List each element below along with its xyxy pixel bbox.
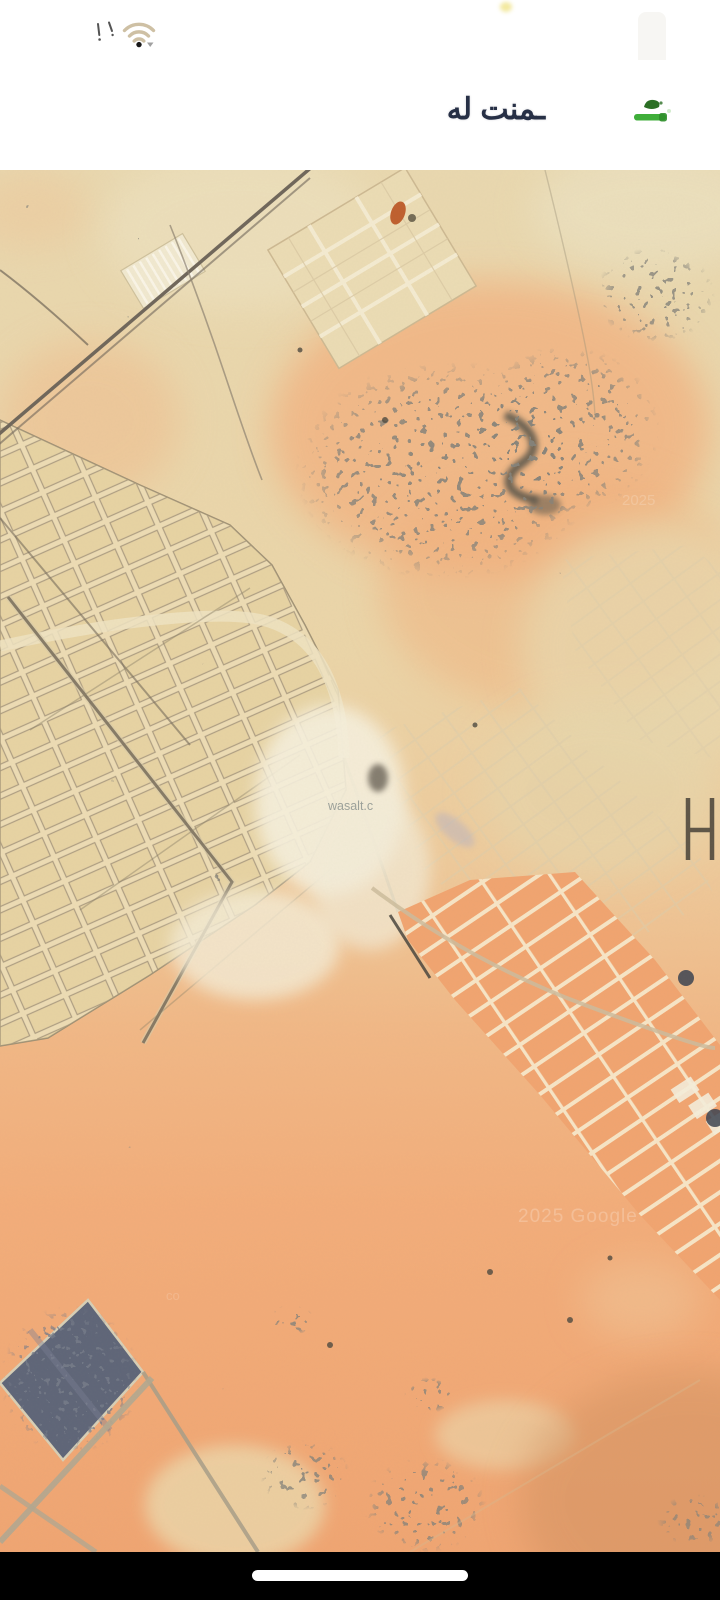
home-indicator[interactable]	[252, 1570, 468, 1581]
watermark-copyright-faint: 2025	[622, 492, 655, 509]
page-title: ـمنت له	[447, 92, 545, 127]
phone-screen: ـمنت له	[0, 0, 720, 1600]
wifi-caret-icon	[147, 43, 154, 48]
grain-overlay	[0, 170, 720, 1552]
system-navigation-bar	[0, 1552, 720, 1600]
map-container: wasalt.c 2025 Google 2025 co	[0, 170, 720, 1552]
app-logo-icon[interactable]	[630, 94, 674, 134]
status-bar	[0, 0, 720, 60]
watermark-provider: wasalt.c	[327, 799, 373, 813]
satellite-map-view[interactable]: wasalt.c 2025 Google 2025 co	[0, 170, 720, 1552]
watermark-copyright: 2025 Google	[518, 1206, 638, 1227]
app-header: ـمنت له	[0, 60, 720, 170]
artifact-dot	[500, 2, 512, 12]
watermark-partial: co	[166, 1288, 180, 1303]
wifi-icon	[120, 16, 158, 50]
status-glyphs	[92, 20, 120, 48]
